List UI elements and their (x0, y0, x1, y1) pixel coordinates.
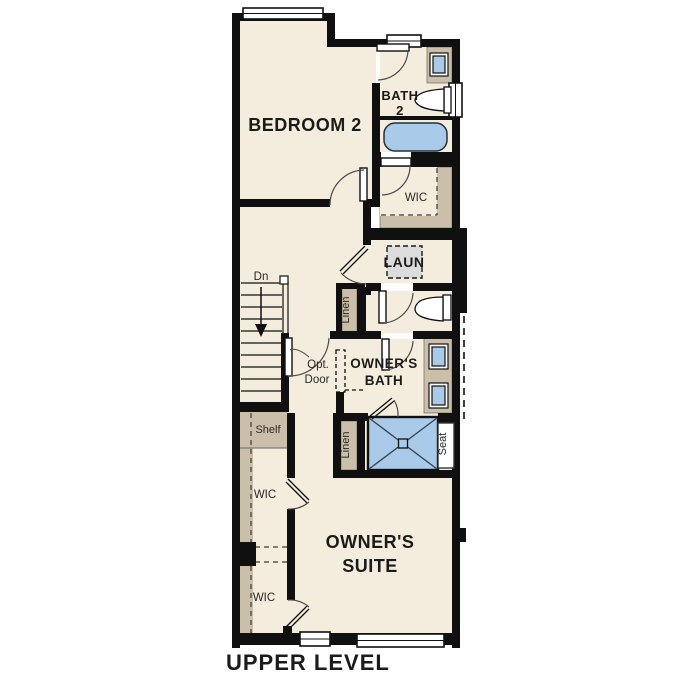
wall-segment (452, 313, 460, 427)
owners-suite-label-line2: SUITE (342, 556, 398, 576)
plan-level-title: UPPER LEVEL (226, 650, 390, 675)
wall-segment (452, 228, 467, 313)
wall-segment (452, 47, 460, 84)
owners-suite-label-line1: OWNER'S (326, 532, 415, 552)
optional-door-label-line2: Door (305, 374, 330, 386)
owners-bath-label-line1: OWNER'S (350, 356, 417, 371)
wall-segment (232, 402, 289, 412)
bath2-label-line1: BATH (381, 88, 418, 103)
wall-segment (357, 421, 365, 470)
bathtub-icon (384, 123, 447, 151)
optional-door-label-line1: Opt. (307, 359, 329, 371)
stairs-down-label: Dn (254, 271, 269, 283)
shower-drain (399, 439, 408, 448)
owners-sink2-icon (432, 386, 445, 405)
bedroom2-label: BEDROOM 2 (248, 115, 362, 135)
wall-segment (330, 331, 381, 339)
wall-segment (333, 413, 368, 421)
owners-sink1-icon (432, 347, 445, 366)
wall-segment (372, 83, 380, 207)
owners-bath-label-line2: BATH (365, 373, 404, 388)
bedroom2-floor (240, 21, 335, 201)
wic-top-label: WIC (405, 192, 427, 204)
wall-segment (413, 283, 452, 291)
wall-segment (372, 152, 381, 167)
wall-segment (357, 287, 366, 333)
wall-segment (333, 470, 460, 478)
linen-upper-label: Linen (340, 297, 352, 324)
bath2-sink-icon (433, 56, 445, 73)
floor-plan-page: BEDROOM 2 BATH 2 WIC LAUN Linen Dn Opt. … (0, 0, 687, 687)
wall-segment (366, 283, 381, 291)
bath2-label-line2: 2 (396, 103, 404, 118)
wall-segment (363, 228, 460, 240)
seat-label: Seat (437, 433, 449, 456)
wall-segment (287, 413, 295, 478)
shelf-label: Shelf (255, 424, 281, 436)
wic-middle-label: WIC (254, 489, 276, 501)
wall-segment (287, 509, 295, 600)
wic-lower-label: WIC (253, 592, 275, 604)
floor-plan-svg: BEDROOM 2 BATH 2 WIC LAUN Linen Dn Opt. … (0, 0, 687, 687)
wall-segment (438, 413, 460, 423)
shower-icon (368, 417, 438, 470)
wall-segment (232, 199, 330, 207)
wall-segment (452, 116, 460, 228)
laundry-label: LAUN (384, 254, 425, 270)
linen-lower-label: Linen (340, 432, 352, 459)
wall-segment (413, 331, 452, 339)
wall-segment (452, 528, 466, 542)
stair-newel-post (280, 276, 288, 284)
wall-segment (380, 116, 452, 120)
wall-segment (411, 152, 460, 167)
structural-column (237, 542, 256, 566)
